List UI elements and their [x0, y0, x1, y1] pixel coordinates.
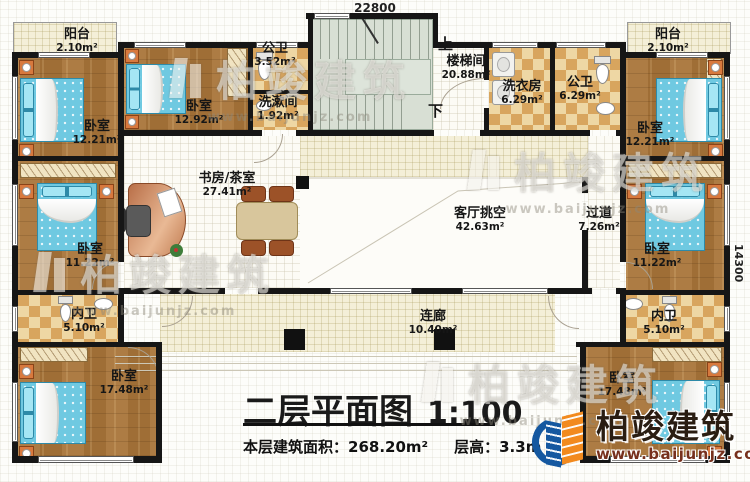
floor-area-value: 268.20m² [348, 438, 428, 456]
wall [550, 42, 555, 130]
nightstand [707, 184, 722, 199]
wall [548, 288, 592, 294]
nightstand [125, 115, 139, 129]
wall [576, 342, 730, 347]
room-label-stairwell: 楼梯间20.88m² [442, 55, 491, 81]
wall [12, 156, 118, 161]
room-area: 27.41m² [199, 187, 256, 199]
wall [248, 42, 253, 130]
office-chair [126, 205, 151, 237]
room-name: 洗漱间 [257, 96, 298, 111]
wall [12, 290, 118, 295]
title-subtitle: 本层建筑面积：268.20m²层高：3.3m [243, 436, 541, 457]
dimension-top: 22800 [354, 1, 396, 15]
room-area: 3.52m² [254, 57, 295, 69]
wall [296, 130, 434, 136]
room-area: 2.10m² [647, 43, 688, 55]
room-label-bedroom-tr: 卧室12.21m² [626, 122, 675, 148]
washing-machine-icon [492, 52, 515, 77]
wall [12, 342, 162, 347]
room-name: 内卫 [643, 310, 684, 325]
brand-logo: 柏竣建筑 www.baijunjz.com [534, 410, 750, 476]
dimension-right: 14300 [732, 244, 745, 282]
room-area: 12.21m² [73, 135, 122, 147]
room-name: 卧室 [175, 100, 224, 115]
room-label-bedroom-bl: 卧室17.48m² [100, 370, 149, 396]
brand-logo-text: 柏竣建筑 www.baijunjz.com [596, 410, 750, 463]
wall [118, 288, 225, 294]
floor-plan: 阳台2.10m² 卧室12.21m² 卧室12.92m² 公卫3.52m² 洗漱… [0, 0, 750, 482]
room-area: 6.29m² [501, 95, 542, 107]
room-name: 过道 [578, 207, 619, 222]
wall [484, 108, 489, 130]
nightstand [125, 49, 139, 63]
window [462, 288, 548, 294]
sink-icon [596, 102, 615, 115]
wall [248, 90, 308, 94]
room-label-washroom: 洗漱间1.92m² [257, 96, 298, 122]
nightstand [707, 362, 722, 377]
room-name: 卧室 [100, 370, 149, 385]
window [314, 13, 350, 19]
room-name: 楼梯间 [442, 55, 491, 70]
brand-name: 柏竣建筑 [596, 410, 750, 445]
stair-upper-flight [311, 19, 433, 59]
wall [118, 130, 262, 136]
wall [620, 42, 626, 262]
nightstand [19, 60, 34, 75]
terrace-line [115, 356, 577, 357]
bed-mr [645, 183, 705, 251]
window [556, 42, 606, 48]
room-name: 卧室 [626, 122, 675, 137]
window [724, 306, 730, 332]
room-label-ensuite-l: 内卫5.10m² [63, 308, 104, 334]
room-label-corridor: 连廊10.40m² [409, 310, 458, 336]
room-label-living-void: 客厅挑空42.63m² [454, 207, 506, 233]
wall [412, 288, 462, 294]
room-area: 5.10m² [643, 325, 684, 337]
window [724, 76, 730, 140]
room-area: 12.21m² [626, 137, 675, 149]
room-name: 公卫 [254, 42, 295, 57]
room-name: 连廊 [409, 310, 458, 325]
title-underline [243, 423, 495, 426]
room-area: 12.92m² [175, 115, 224, 127]
room-area: 1.92m² [257, 111, 298, 123]
room-area: 6.29m² [559, 91, 600, 103]
wall [620, 288, 626, 347]
room-area: 20.88m² [442, 70, 491, 82]
tea-table [236, 202, 298, 240]
column [296, 176, 309, 189]
room-label-hallway: 过道7.26m² [578, 207, 619, 233]
wall [308, 13, 313, 130]
room-area: 10.40m² [409, 325, 458, 337]
wardrobe-br [652, 347, 722, 362]
room-area: 7.26m² [578, 222, 619, 234]
wall [118, 42, 124, 262]
room-name: 阳台 [647, 28, 688, 43]
plant-icon [170, 244, 183, 257]
wall [620, 290, 724, 295]
room-area: 17.48m² [598, 387, 647, 399]
room-name: 内卫 [63, 308, 104, 323]
column [284, 329, 305, 350]
room-name: 书房/茶室 [199, 172, 256, 187]
wardrobe-bl [20, 347, 88, 362]
window [330, 288, 412, 294]
room-area: 2.10m² [56, 43, 97, 55]
wardrobe-ml [20, 163, 116, 178]
cabinet-bedroom-t2 [227, 48, 247, 97]
room-name: 卧室 [73, 120, 122, 135]
stair-down-label: 下 [428, 100, 443, 121]
window [12, 76, 18, 140]
window [134, 42, 186, 48]
nightstand [708, 60, 723, 75]
nightstand [19, 364, 34, 379]
brand-logo-icon [534, 410, 592, 476]
bed-ml [37, 183, 97, 251]
stair-landing [345, 59, 431, 95]
sink-icon [624, 298, 643, 310]
wall [582, 177, 588, 193]
nightstand [99, 184, 114, 199]
wall [480, 130, 590, 136]
room-label-bath-top: 公卫3.52m² [254, 42, 295, 68]
nightstand [627, 184, 642, 199]
room-label-bedroom-t2: 卧室12.92m² [175, 100, 224, 126]
window [12, 184, 18, 246]
room-area: 11.22m² [66, 258, 115, 270]
terrace-line [115, 370, 577, 371]
room-label-study: 书房/茶室27.41m² [199, 172, 256, 198]
logo-blue-tower [546, 420, 561, 467]
room-label-bath-tr: 公卫6.29m² [559, 76, 600, 102]
wall [156, 347, 162, 458]
floor-area-label: 本层建筑面积： [243, 438, 348, 456]
window [724, 184, 730, 246]
room-label-balcony-tr: 阳台2.10m² [647, 28, 688, 54]
stair-lower-flight [311, 95, 409, 130]
chair [269, 240, 294, 256]
chair [241, 240, 266, 256]
room-name: 洗衣房 [501, 80, 542, 95]
room-name: 卧室 [66, 243, 115, 258]
room-label-bedroom-ml: 卧室11.22m² [66, 243, 115, 269]
terrace-line [115, 363, 577, 364]
wall [118, 288, 124, 347]
room-area: 5.10m² [63, 323, 104, 335]
room-label-bedroom-mr: 卧室11.22m² [633, 243, 682, 269]
wall [620, 156, 724, 161]
room-area: 17.48m² [100, 385, 149, 397]
room-label-bedroom-br: 卧室17.48m² [598, 372, 647, 398]
corridor-floor [160, 294, 555, 352]
upper-corridor-floor [300, 136, 588, 177]
room-label-ensuite-r: 内卫5.10m² [643, 310, 684, 336]
logo-orange-tower [562, 411, 583, 464]
void-outline-lines [300, 177, 584, 289]
wardrobe-mr [628, 163, 722, 178]
chair [269, 186, 294, 202]
stair-up-label: 上 [438, 33, 453, 54]
bed-bl [20, 382, 86, 444]
window [12, 382, 18, 442]
room-label-laundry: 洗衣房6.29m² [501, 80, 542, 106]
room-name: 阳台 [56, 28, 97, 43]
window [492, 42, 538, 48]
room-name: 卧室 [633, 243, 682, 258]
room-label-bedroom-tl: 卧室12.21m² [73, 120, 122, 146]
nightstand [19, 184, 34, 199]
room-name: 卧室 [598, 372, 647, 387]
wall [582, 230, 588, 288]
room-name: 客厅挑空 [454, 207, 506, 222]
brand-website: www.baijunjz.com [596, 445, 750, 463]
wall [258, 288, 330, 294]
floor-height-label: 层高： [454, 438, 499, 456]
room-area: 42.63m² [454, 222, 506, 234]
window [38, 456, 134, 463]
window [12, 306, 18, 332]
room-area: 11.22m² [633, 258, 682, 270]
room-name: 公卫 [559, 76, 600, 91]
room-label-balcony-tl: 阳台2.10m² [56, 28, 97, 54]
